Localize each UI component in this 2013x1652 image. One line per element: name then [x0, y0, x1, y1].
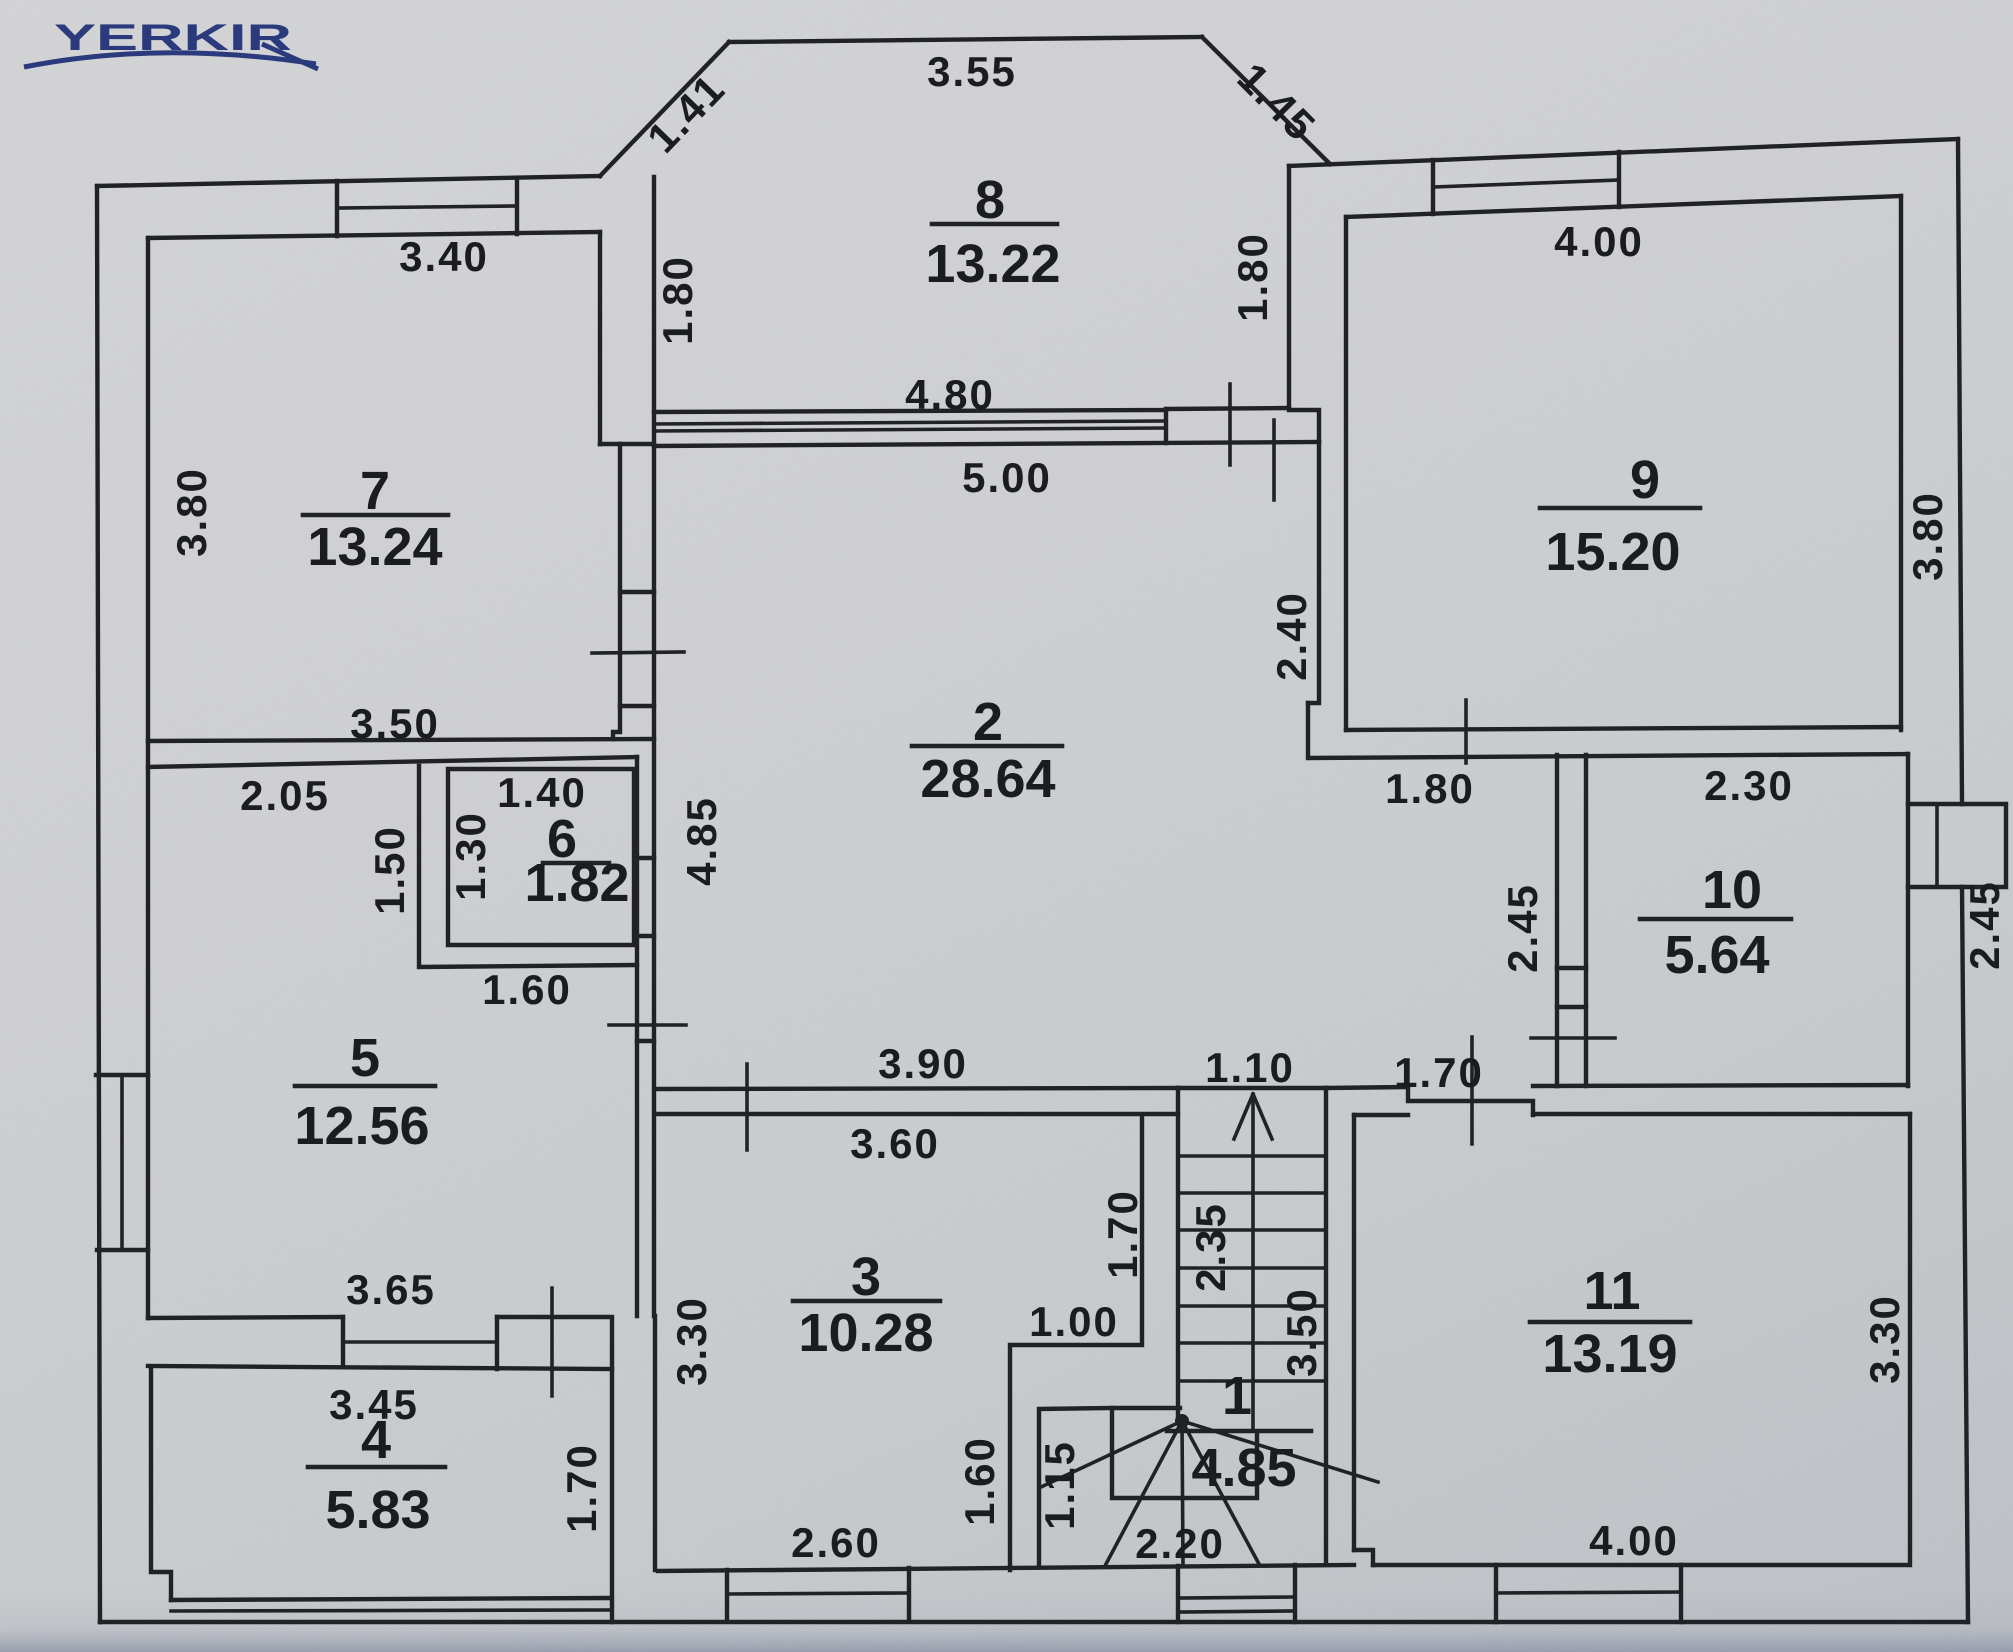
svg-text:4.85: 4.85: [1191, 1438, 1296, 1498]
svg-text:2.45: 2.45: [1961, 880, 2008, 970]
svg-text:12.56: 12.56: [294, 1096, 429, 1156]
svg-text:2.60: 2.60: [791, 1519, 881, 1566]
svg-text:1.82: 1.82: [524, 853, 629, 913]
svg-text:1.10: 1.10: [1205, 1044, 1295, 1091]
svg-text:1.80: 1.80: [654, 255, 701, 345]
svg-text:3.65: 3.65: [346, 1266, 436, 1313]
svg-text:5.00: 5.00: [962, 454, 1052, 501]
svg-text:2.05: 2.05: [240, 772, 330, 819]
svg-text:3.30: 3.30: [1861, 1294, 1908, 1384]
svg-text:2.45: 2.45: [1499, 883, 1546, 973]
svg-text:13.24: 13.24: [307, 517, 442, 577]
svg-text:YERKIR: YERKIR: [54, 17, 292, 58]
svg-text:2: 2: [973, 692, 1003, 752]
svg-text:2.30: 2.30: [1704, 762, 1794, 809]
svg-text:3.50: 3.50: [1278, 1287, 1325, 1377]
svg-text:3.80: 3.80: [1904, 491, 1951, 581]
svg-text:15.20: 15.20: [1545, 522, 1680, 582]
svg-text:3.55: 3.55: [927, 48, 1017, 95]
svg-text:1.70: 1.70: [1394, 1049, 1484, 1096]
svg-text:7: 7: [360, 461, 390, 521]
svg-text:3.90: 3.90: [878, 1040, 968, 1087]
svg-text:2.20: 2.20: [1135, 1520, 1225, 1567]
svg-text:1.60: 1.60: [482, 966, 572, 1013]
svg-text:3.50: 3.50: [350, 700, 440, 747]
svg-text:13.19: 13.19: [1542, 1324, 1677, 1384]
svg-text:4.00: 4.00: [1589, 1517, 1679, 1564]
svg-text:1.60: 1.60: [956, 1436, 1003, 1526]
svg-text:5.83: 5.83: [325, 1480, 430, 1540]
svg-text:5: 5: [350, 1028, 380, 1088]
svg-text:1.70: 1.70: [1099, 1189, 1146, 1279]
svg-text:9: 9: [1630, 450, 1660, 510]
svg-text:4.85: 4.85: [678, 796, 725, 886]
svg-text:3: 3: [851, 1247, 881, 1307]
svg-text:2.35: 2.35: [1187, 1202, 1234, 1292]
svg-text:2.40: 2.40: [1268, 591, 1315, 681]
svg-text:1.80: 1.80: [1229, 232, 1276, 322]
svg-text:3.40: 3.40: [399, 233, 489, 280]
svg-text:1.50: 1.50: [366, 825, 413, 915]
svg-text:8: 8: [975, 170, 1005, 230]
svg-text:1.80: 1.80: [1385, 765, 1475, 812]
svg-text:1: 1: [1222, 1366, 1252, 1426]
svg-text:1.30: 1.30: [447, 811, 494, 901]
svg-text:5.64: 5.64: [1664, 925, 1769, 985]
svg-text:4.00: 4.00: [1554, 218, 1644, 265]
svg-text:3.80: 3.80: [168, 467, 215, 557]
svg-text:10.28: 10.28: [798, 1303, 933, 1363]
svg-text:4.80: 4.80: [905, 371, 995, 418]
svg-text:1.70: 1.70: [558, 1443, 605, 1533]
svg-text:3.60: 3.60: [850, 1120, 940, 1167]
svg-text:13.22: 13.22: [925, 234, 1060, 294]
svg-text:1.00: 1.00: [1029, 1298, 1119, 1345]
svg-text:10: 10: [1702, 860, 1762, 920]
svg-text:3.30: 3.30: [668, 1296, 715, 1386]
svg-text:4: 4: [361, 1410, 391, 1470]
svg-text:28.64: 28.64: [920, 749, 1055, 809]
svg-text:1.15: 1.15: [1036, 1440, 1083, 1530]
svg-text:11: 11: [1583, 1261, 1640, 1321]
